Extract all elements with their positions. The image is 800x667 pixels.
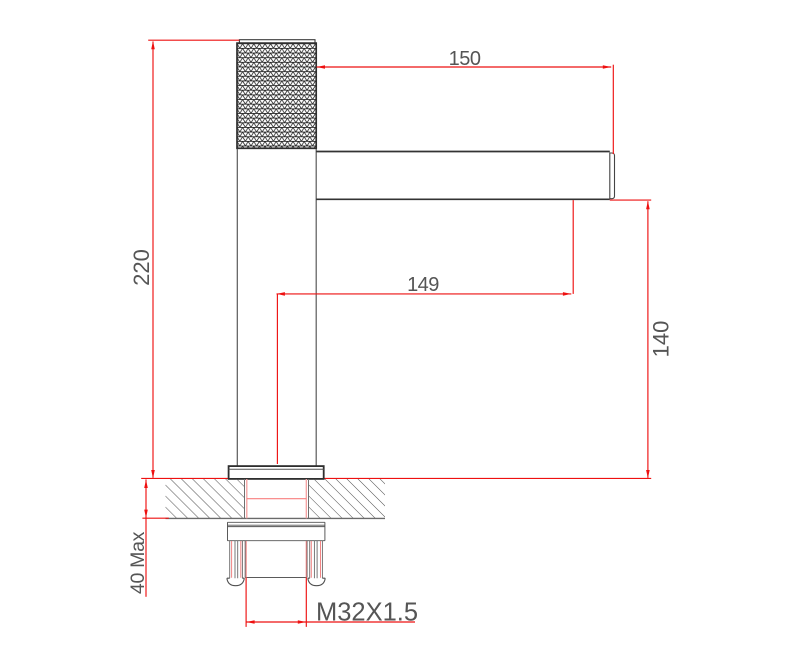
svg-text:140: 140 — [648, 321, 673, 358]
svg-text:150: 150 — [449, 48, 481, 70]
svg-text:40 Max: 40 Max — [127, 531, 149, 594]
svg-text:220: 220 — [129, 249, 154, 286]
svg-text:M32X1.5: M32X1.5 — [316, 598, 418, 626]
svg-text:149: 149 — [407, 274, 439, 296]
